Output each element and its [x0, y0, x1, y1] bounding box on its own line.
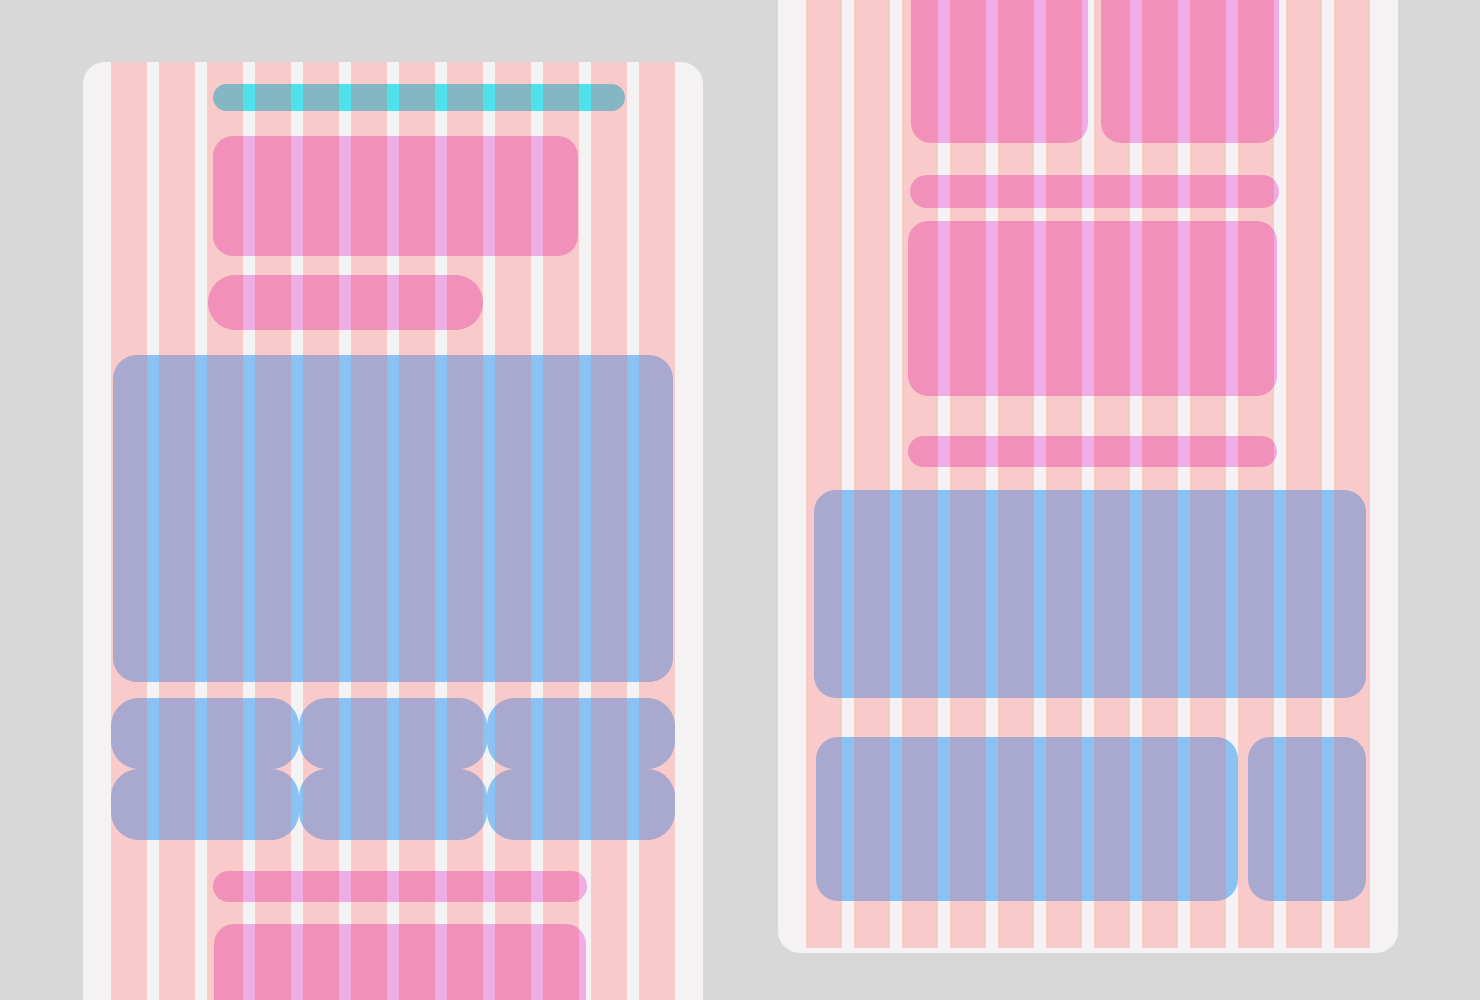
- right-screen-card: [778, 0, 1398, 953]
- tile-row-cell: [299, 769, 487, 840]
- tile-row-cell: [111, 698, 299, 769]
- periwinkle-hero-block: [814, 490, 1366, 698]
- column-grid-stripes: [806, 0, 1370, 948]
- pink-top-right-block: [1101, 0, 1279, 143]
- pink-divider-pill: [910, 175, 1279, 208]
- pink-footer-pill: [213, 871, 587, 902]
- pink-header-block: [213, 136, 578, 256]
- left-screen-card: [83, 62, 703, 1000]
- pink-footer-block: [214, 924, 586, 1000]
- tile-row-cell: [487, 769, 675, 840]
- periwinkle-narrow-block: [1248, 737, 1366, 901]
- periwinkle-hero-block: [113, 355, 673, 682]
- pink-content-block: [908, 221, 1277, 396]
- column-grid-stripes: [111, 62, 675, 1000]
- teal-toolbar-pill: [213, 84, 625, 111]
- pink-divider-pill: [908, 436, 1277, 467]
- pink-subheader-pill: [208, 275, 483, 330]
- wireframe-canvas: [0, 0, 1480, 1000]
- pink-top-left-block: [911, 0, 1088, 143]
- tile-row-cell: [111, 769, 299, 840]
- tile-row-cell: [299, 698, 487, 769]
- tile-row-cell: [487, 698, 675, 769]
- periwinkle-wide-block: [816, 737, 1238, 901]
